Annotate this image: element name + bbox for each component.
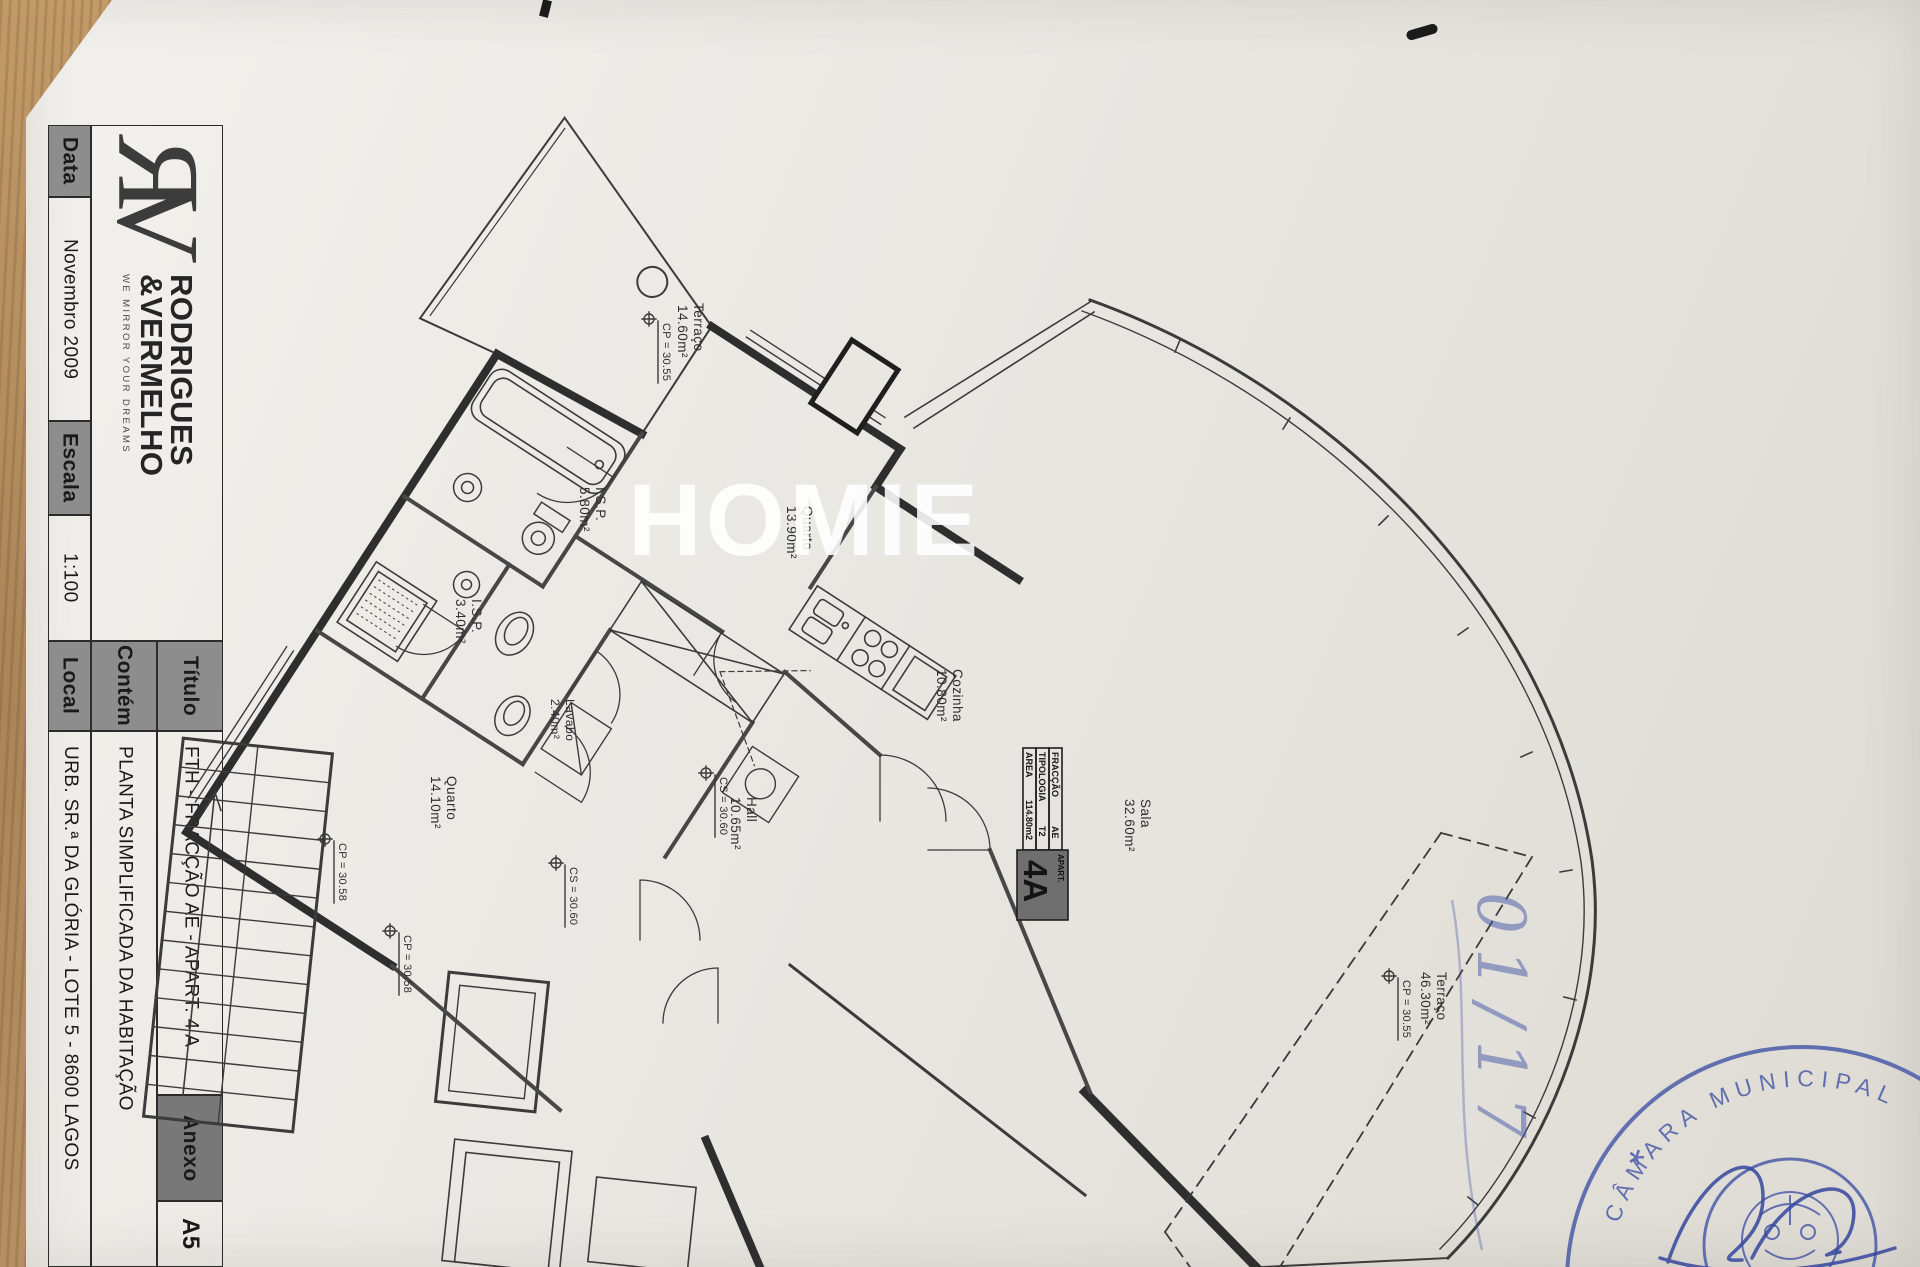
- room-area-terraco1: 14.60m²: [675, 305, 690, 358]
- level-label-cs-lower: CS = 30.60: [567, 867, 579, 925]
- room-area-lavabo: 2.40m²: [548, 699, 562, 739]
- toilet-isp1: [515, 502, 570, 561]
- lower-apartment-walls: [392, 880, 1085, 1267]
- room-area-hall: 10.65m²: [728, 797, 743, 850]
- room-area-terraco2: 46.30m²: [1418, 972, 1433, 1025]
- table-value-apart: 4A: [1017, 860, 1054, 902]
- room-label-lavabo: Lavabo: [563, 699, 577, 741]
- table-label-area: AREA: [1024, 752, 1034, 778]
- municipal-stamp: CÂMARA MUNICIPAL *: [1567, 1047, 1920, 1267]
- level-label-cs-hall: CS = 30.60: [717, 777, 729, 835]
- washbasin-isp1: [448, 468, 487, 507]
- signature-icon: [1660, 1167, 1895, 1267]
- room-area-quarto2: 14.10m²: [428, 776, 443, 829]
- stamp-crest-icon: [1742, 1192, 1838, 1267]
- room-label-hall: Hall: [744, 797, 759, 822]
- room-label-cozinha: Cozinha: [950, 669, 965, 722]
- dashed-opening: [687, 630, 814, 766]
- window-lines: [189, 212, 885, 1003]
- level-marker-icon: [642, 312, 658, 383]
- room-label-terraco2: Terraço: [1434, 972, 1449, 1021]
- room-area-cozinha: 10.80m²: [934, 669, 949, 722]
- room-label-isp2: I.S.P.: [469, 599, 484, 633]
- level-label-cp-terrace1: CP = 30.55: [660, 323, 672, 381]
- level-marker-icon: [1382, 969, 1398, 1040]
- exterior-walls: [187, 237, 1043, 1137]
- room-area-isp2: 3.40m²: [453, 599, 468, 644]
- elevator-shaft: [435, 972, 548, 1112]
- level-marker-icon: [549, 856, 565, 927]
- table-value-fraccao: AE: [1050, 826, 1060, 839]
- floorplan-drawing: Terraço 14.60m² I.S.P. 5.80m² Quarto 13.…: [0, 0, 1920, 1267]
- room-label-terraco1: Terraço: [691, 303, 706, 352]
- room-label-quarto2: Quarto: [444, 776, 459, 820]
- table-value-tipologia: T2: [1037, 826, 1047, 837]
- photographed-floorplan-document: { "watermark": { "text": "HOMIE" }, "tit…: [0, 0, 1920, 1267]
- room-label-sala: Sala: [1138, 799, 1153, 828]
- wardrobe: [610, 581, 784, 722]
- terrace-light-icon: [632, 261, 673, 302]
- level-label-cp-terrace2: CP = 30.55: [1400, 980, 1412, 1038]
- handwritten-reference: 01/17: [1452, 892, 1539, 1250]
- room-area-isp1: 5.80m²: [577, 487, 592, 532]
- table-label-fraccao: FRACÇÃO: [1050, 752, 1060, 797]
- table-label-tipologia: TIPOLOGIA: [1037, 752, 1047, 802]
- room-area-sala: 32.60m²: [1122, 799, 1137, 852]
- bay-windows: [442, 1139, 696, 1267]
- level-label-cp-stairs: CP = 30.58: [336, 843, 348, 901]
- room-label-isp1: I.S.P.: [593, 487, 608, 521]
- handwritten-number: 01/17: [1462, 892, 1539, 1152]
- table-label-apart: APART.: [1056, 854, 1065, 882]
- level-label-cp-lower: CP = 30.58: [401, 935, 413, 993]
- table-value-area: 114.80m2: [1024, 800, 1034, 840]
- apartment-block: [116, 111, 1095, 1137]
- duct-block: [811, 340, 898, 433]
- watermark: HOMIE: [628, 462, 982, 579]
- washbasin-isp2: [449, 567, 485, 603]
- stairwell: [144, 738, 333, 1132]
- fraction-info-table: FRACÇÃO AE TIPOLOGIA T2 AREA 114.80m2 AP…: [1017, 748, 1068, 920]
- utility-boxes: [541, 651, 798, 875]
